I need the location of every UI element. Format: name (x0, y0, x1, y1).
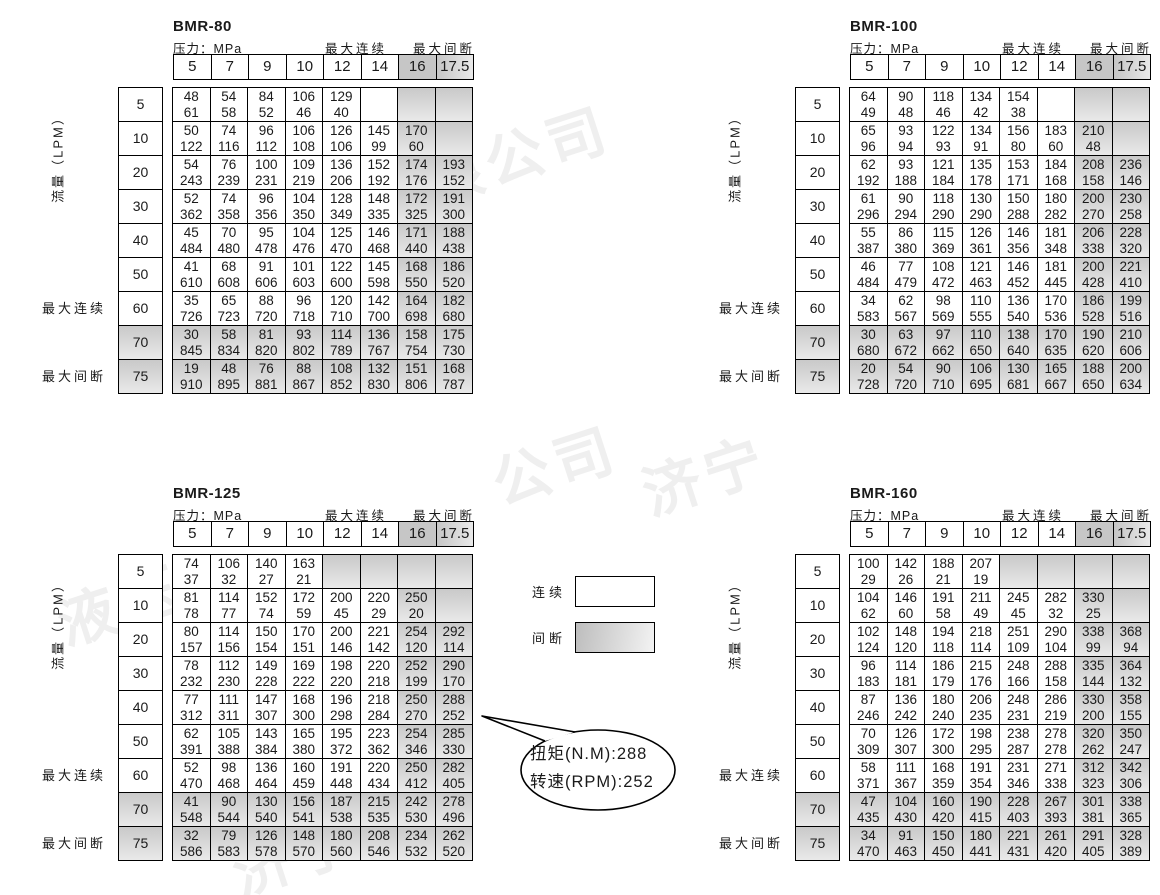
speed-value: 307 (248, 708, 285, 724)
speed-value: 430 (888, 810, 925, 826)
speed-value: 114 (436, 640, 473, 656)
speed-value: 325 (398, 207, 435, 223)
speed-value: 403 (1000, 810, 1037, 826)
table-row: 3096183114181186179215176248166288158335… (712, 656, 1154, 691)
torque-speed-cell: 5458 (210, 87, 249, 122)
torque-speed-cell: 70309 (849, 724, 888, 759)
torque-value: 118 (925, 89, 962, 105)
torque-value: 168 (925, 760, 962, 776)
pressure-header-row: 5791012141617.5 (850, 54, 1154, 80)
pressure-col-header: 14 (1038, 521, 1077, 547)
speed-value: 463 (963, 275, 1000, 291)
torque-value: 58 (211, 327, 248, 343)
speed-value: 60 (1038, 139, 1075, 155)
speed-value: 681 (1000, 377, 1037, 393)
speed-value: 21 (286, 572, 323, 588)
torque-value: 221 (1000, 828, 1037, 844)
table-row: 最大间断753447091463150450180441221431261420… (712, 826, 1154, 861)
torque-speed-cell: 200634 (1112, 359, 1151, 394)
torque-value: 170 (1038, 293, 1075, 309)
torque-value: 34 (850, 293, 887, 309)
torque-speed-cell: 15274 (247, 588, 286, 623)
torque-speed-cell: 118290 (924, 189, 963, 224)
flow-row-header: 5 (118, 554, 163, 589)
speed-value: 680 (850, 343, 887, 359)
speed-value: 362 (361, 742, 398, 758)
torque-value: 175 (436, 327, 473, 343)
torque-value: 261 (1038, 828, 1075, 844)
torque-speed-cell: 130681 (999, 359, 1038, 394)
torque-speed-cell: 106108 (285, 121, 324, 156)
torque-speed-cell: 199516 (1112, 291, 1151, 326)
torque-speed-cell: 98468 (210, 758, 249, 793)
flow-row-header: 30 (795, 656, 840, 691)
torque-speed-cell: 218284 (360, 690, 399, 725)
torque-speed-cell: 236146 (1112, 155, 1151, 190)
max-intermittent-label: 最大间断 (1090, 38, 1152, 57)
pressure-header-row: 5791012141617.5 (173, 521, 477, 547)
torque-speed-cell: 63672 (887, 325, 926, 360)
torque-value: 80 (173, 624, 210, 640)
torque-speed-cell: 150450 (924, 826, 963, 861)
torque-speed-cell: 250270 (397, 690, 436, 725)
speed-value: 104 (1038, 640, 1075, 656)
torque-speed-cell: 350247 (1112, 724, 1151, 759)
speed-value: 166 (1000, 674, 1037, 690)
torque-value: 143 (248, 726, 285, 742)
speed-value: 120 (398, 640, 435, 656)
torque-speed-cell: 130540 (247, 792, 286, 827)
flow-row-header: 30 (795, 189, 840, 224)
torque-value: 278 (1038, 726, 1075, 742)
torque-speed-cell: 252199 (397, 656, 436, 691)
torque-speed-cell: 338365 (1112, 792, 1151, 827)
torque-value: 210 (1075, 123, 1112, 139)
torque-speed-cell: 34583 (849, 291, 888, 326)
torque-value: 98 (211, 760, 248, 776)
speed-value: 49 (963, 606, 1000, 622)
torque-speed-cell: 191354 (962, 758, 1001, 793)
torque-value: 65 (850, 123, 887, 139)
torque-value: 223 (361, 726, 398, 742)
torque-value: 63 (888, 327, 925, 343)
torque-speed-cell: 190620 (1074, 325, 1113, 360)
torque-speed-cell: 218114 (962, 622, 1001, 657)
watermark-text: 公司 (480, 402, 628, 521)
torque-value: 215 (963, 658, 1000, 674)
torque-value: 158 (398, 327, 435, 343)
flow-row-header: 10 (795, 121, 840, 156)
torque-speed-cell: 126106 (322, 121, 361, 156)
table-row: 最大间断753258679583126578148570180560208546… (35, 826, 477, 861)
speed-value: 806 (398, 377, 435, 393)
speed-value: 544 (211, 810, 248, 826)
torque-speed-cell: 200146 (322, 622, 361, 657)
torque-value: 54 (211, 89, 248, 105)
torque-speed-cell: 148570 (285, 826, 324, 861)
speed-value: 634 (1113, 377, 1150, 393)
table-title: BMR-160 (850, 485, 1154, 505)
torque-speed-cell: 168300 (285, 690, 324, 725)
torque-value: 196 (323, 692, 360, 708)
speed-value: 356 (1000, 241, 1037, 257)
speed-value: 359 (925, 776, 962, 792)
speed-value: 78 (173, 606, 210, 622)
speed-value: 232 (173, 674, 210, 690)
speed-value: 620 (1075, 343, 1112, 359)
speed-value: 120 (888, 640, 925, 656)
speed-value: 298 (323, 708, 360, 724)
table-row: 2010212414812019411821811425110929010433… (712, 622, 1154, 657)
torque-speed-cell: 143384 (247, 724, 286, 759)
max-intermittent-label: 最大间断 (1090, 505, 1152, 524)
torque-speed-cell: 102124 (849, 622, 888, 657)
torque-speed-cell: 32586 (172, 826, 211, 861)
speed-value: 516 (1113, 309, 1150, 325)
torque-value: 134 (963, 89, 1000, 105)
torque-value: 100 (850, 556, 887, 572)
max-continuous-label: 最大连续 (325, 505, 387, 524)
torque-speed-cell: 14599 (360, 121, 399, 156)
torque-speed-cell: 19158 (924, 588, 963, 623)
table-row: 3052362743589635610435012834914833517232… (35, 189, 477, 224)
speed-value: 464 (248, 776, 285, 792)
row-side-label: 最大间断 (35, 826, 118, 861)
speed-value: 231 (248, 173, 285, 189)
torque-speed-cell: 170151 (285, 622, 324, 657)
torque-value: 114 (211, 590, 248, 606)
torque-value: 186 (436, 259, 473, 275)
torque-speed-cell: 148335 (360, 189, 399, 224)
torque-value: 262 (436, 828, 473, 844)
torque-value: 215 (361, 794, 398, 810)
speed-value: 767 (361, 343, 398, 359)
speed-value: 61 (173, 105, 210, 121)
speed-value: 448 (323, 776, 360, 792)
speed-value: 895 (211, 377, 248, 393)
speed-value: 152 (436, 173, 473, 189)
speed-value: 60 (888, 606, 925, 622)
speed-value: 171 (1000, 173, 1037, 189)
speed-value: 787 (436, 377, 473, 393)
torque-value: 54 (888, 361, 925, 377)
speed-value: 388 (211, 742, 248, 758)
torque-value: 250 (398, 590, 435, 606)
table-row: 最大连续603458362567985691105551365401705361… (712, 291, 1154, 326)
torque-speed-cell: 170635 (1037, 325, 1076, 360)
speed-value: 445 (1038, 275, 1075, 291)
torque-speed-cell: 19910 (172, 359, 211, 394)
flow-row-header: 10 (795, 588, 840, 623)
torque-value: 330 (1075, 590, 1112, 606)
torque-value: 150 (1000, 191, 1037, 207)
table-row: 57437106321402716321 (35, 554, 477, 589)
torque-value: 245 (1000, 590, 1037, 606)
torque-value: 122 (925, 123, 962, 139)
speed-value: 295 (963, 742, 1000, 758)
torque-speed-cell: 50122 (172, 121, 211, 156)
torque-speed-cell: 223362 (360, 724, 399, 759)
torque-speed-cell: 104430 (887, 792, 926, 827)
speed-value: 62 (850, 606, 887, 622)
speed-value: 356 (248, 207, 285, 223)
speed-value: 479 (888, 275, 925, 291)
speed-value: 262 (1075, 742, 1112, 758)
legend-intermittent-row: 间断 (518, 622, 655, 653)
pressure-header-line: 压力：MPa最大连续最大间断 (850, 505, 1154, 521)
speed-value: 284 (361, 708, 398, 724)
speed-value: 387 (850, 241, 887, 257)
legend-intermittent-label: 间断 (518, 628, 575, 647)
torque-value: 126 (248, 828, 285, 844)
speed-value: 476 (286, 241, 323, 257)
speed-value: 112 (248, 139, 285, 155)
torque-speed-cell: 91606 (247, 257, 286, 292)
torque-speed-cell: 342306 (1112, 758, 1151, 793)
torque-value: 152 (361, 157, 398, 173)
torque-speed-cell: 121463 (962, 257, 1001, 292)
torque-speed-cell: 21048 (1074, 121, 1113, 156)
table-row: 2062192931881211841351781531711841682081… (712, 155, 1154, 190)
torque-value: 136 (323, 157, 360, 173)
speed-value: 450 (925, 844, 962, 860)
torque-value: 231 (1000, 760, 1037, 776)
table-row: 2054243762391002311092191362061521921741… (35, 155, 477, 190)
pressure-col-header: 17.5 (1113, 521, 1152, 547)
torque-value: 76 (248, 361, 285, 377)
table-row: 2080157114156150154170151200146221142254… (35, 622, 477, 657)
torque-speed-cell: 135178 (962, 155, 1001, 190)
torque-speed-cell: 14660 (887, 588, 926, 623)
speed-value: 26 (888, 572, 925, 588)
torque-speed-cell: 132830 (360, 359, 399, 394)
torque-value: 50 (173, 123, 210, 139)
torque-value: 200 (323, 590, 360, 606)
torque-speed-cell: 180240 (924, 690, 963, 725)
speed-value: 361 (963, 241, 1000, 257)
torque-speed-cell: 168550 (397, 257, 436, 292)
torque-speed-cell: 150154 (247, 622, 286, 657)
torque-value: 168 (436, 361, 473, 377)
torque-value: 206 (963, 692, 1000, 708)
torque-speed-cell: 104476 (285, 223, 324, 258)
torque-speed-cell: 96718 (285, 291, 324, 326)
pressure-col-header: 16 (398, 54, 437, 80)
torque-value: 186 (925, 658, 962, 674)
speed-value: 569 (925, 309, 962, 325)
speed-value: 99 (1075, 640, 1112, 656)
speed-value: 246 (850, 708, 887, 724)
torque-value: 248 (1000, 692, 1037, 708)
table-row: 7030680636729766211065013864017063519062… (712, 325, 1154, 360)
speed-value: 881 (248, 377, 285, 393)
torque-speed-cell: 165380 (285, 724, 324, 759)
torque-value: 290 (1038, 624, 1075, 640)
data-grid: 流量（LPM）510029142261882120719101046214660… (712, 554, 1154, 861)
torque-value: 198 (323, 658, 360, 674)
speed-value: 695 (963, 377, 1000, 393)
speed-value: 560 (323, 844, 360, 860)
torque-speed-cell: 8178 (172, 588, 211, 623)
torque-speed-cell: 36894 (1112, 622, 1151, 657)
torque-speed-cell: 187538 (322, 792, 361, 827)
torque-value: 368 (1113, 624, 1150, 640)
torque-value: 195 (323, 726, 360, 742)
pressure-col-header: 7 (211, 54, 250, 80)
torque-value: 30 (850, 327, 887, 343)
torque-speed-cell: 106695 (962, 359, 1001, 394)
table-row: 105012274116961121061081261061459917060 (35, 121, 477, 156)
torque-value: 198 (963, 726, 1000, 742)
speed-value: 218 (361, 674, 398, 690)
table-row: 1010462146601915821149245452823233025 (712, 588, 1154, 623)
speed-value: 157 (173, 640, 210, 656)
torque-speed-cell: 172300 (924, 724, 963, 759)
torque-speed-cell: 97662 (924, 325, 963, 360)
flow-row-header: 70 (795, 792, 840, 827)
torque-value: 208 (1075, 157, 1112, 173)
speed-value: 710 (323, 309, 360, 325)
torque-value: 164 (398, 293, 435, 309)
speed-value: 228 (248, 674, 285, 690)
torque-value: 152 (248, 590, 285, 606)
speed-value: 21 (925, 572, 962, 588)
torque-speed-cell: 136242 (887, 690, 926, 725)
pressure-col-header: 16 (1075, 54, 1114, 80)
speed-value: 106 (323, 139, 360, 155)
speed-value: 52 (248, 105, 285, 121)
speed-value: 468 (211, 776, 248, 792)
speed-value: 431 (1000, 844, 1037, 860)
torque-speed-cell: 320262 (1074, 724, 1113, 759)
torque-value: 187 (323, 794, 360, 810)
torque-value: 165 (1038, 361, 1075, 377)
torque-value: 200 (323, 624, 360, 640)
torque-speed-cell: 10632 (210, 554, 249, 589)
torque-value: 64 (850, 89, 887, 105)
torque-value: 242 (398, 794, 435, 810)
torque-speed-cell: 105388 (210, 724, 249, 759)
torque-speed-cell: 9394 (887, 121, 926, 156)
torque-speed-cell: 54243 (172, 155, 211, 190)
pressure-col-header: 14 (361, 54, 400, 80)
torque-value: 171 (398, 225, 435, 241)
speed-value: 389 (1113, 844, 1150, 860)
torque-value: 251 (1000, 624, 1037, 640)
torque-speed-cell: 221142 (360, 622, 399, 657)
torque-value: 95 (248, 225, 285, 241)
speed-value: 710 (925, 377, 962, 393)
torque-speed-cell: 55387 (849, 223, 888, 258)
torque-value: 77 (888, 259, 925, 275)
torque-speed-cell: 11846 (924, 87, 963, 122)
pressure-col-header: 17.5 (436, 521, 475, 547)
torque-value: 148 (286, 828, 323, 844)
torque-value: 111 (211, 692, 248, 708)
torque-speed-cell: 7437 (172, 554, 211, 589)
torque-value: 74 (211, 123, 248, 139)
speed-value: 546 (361, 844, 398, 860)
torque-value: 338 (1075, 624, 1112, 640)
torque-speed-cell: 87246 (849, 690, 888, 725)
torque-value: 180 (925, 692, 962, 708)
torque-speed-cell: 228403 (999, 792, 1038, 827)
torque-value: 312 (1075, 760, 1112, 776)
torque-speed-cell: 88867 (285, 359, 324, 394)
max-continuous-label: 最大连续 (1002, 38, 1064, 57)
torque-speed-cell: 96356 (247, 189, 286, 224)
speed-value: 541 (286, 810, 323, 826)
row-side-label: 最大连续 (35, 291, 118, 326)
speed-value: 93 (925, 139, 962, 155)
torque-speed-cell: 30680 (849, 325, 888, 360)
speed-value: 410 (1113, 275, 1150, 291)
flow-row-header: 10 (118, 121, 163, 156)
torque-speed-cell: 13491 (962, 121, 1001, 156)
torque-speed-cell: 262520 (435, 826, 474, 861)
torque-speed-cell: 231346 (999, 758, 1038, 793)
torque-speed-cell: 254346 (397, 724, 436, 759)
torque-speed-cell: 114789 (322, 325, 361, 360)
torque-value: 61 (850, 191, 887, 207)
torque-speed-cell: 54720 (887, 359, 926, 394)
pressure-col-header: 10 (963, 54, 1002, 80)
torque-speed-cell: 186520 (435, 257, 474, 292)
table-row: 5070309126307172300198295238287278278320… (712, 724, 1154, 759)
torque-value: 126 (963, 225, 1000, 241)
torque-speed-cell: 138640 (999, 325, 1038, 360)
flow-row-header: 60 (118, 291, 163, 326)
speed-value: 38 (1000, 105, 1037, 121)
torque-value: 142 (888, 556, 925, 572)
flow-row-header: 30 (118, 656, 163, 691)
pressure-header-line: 压力：MPa最大连续最大间断 (850, 38, 1154, 54)
torque-value: 248 (1000, 658, 1037, 674)
torque-speed-cell (360, 87, 399, 122)
speed-value: 178 (963, 173, 1000, 189)
torque-value: 52 (173, 760, 210, 776)
row-side-label: 最大间断 (712, 359, 795, 394)
speed-value: 550 (398, 275, 435, 291)
speed-value: 730 (436, 343, 473, 359)
torque-value: 41 (173, 794, 210, 810)
speed-value: 718 (286, 309, 323, 325)
speed-value: 270 (1075, 207, 1112, 223)
speed-value: 830 (361, 377, 398, 393)
speed-value: 535 (361, 810, 398, 826)
torque-speed-cell (397, 554, 436, 589)
speed-value: 307 (888, 742, 925, 758)
torque-value: 97 (925, 327, 962, 343)
torque-value: 150 (248, 624, 285, 640)
torque-speed-cell: 364132 (1112, 656, 1151, 691)
torque-value: 104 (286, 225, 323, 241)
torque-value: 149 (248, 658, 285, 674)
speed-value: 754 (398, 343, 435, 359)
torque-value: 30 (173, 327, 210, 343)
torque-value: 218 (361, 692, 398, 708)
torque-speed-cell: 180441 (962, 826, 1001, 861)
torque-value: 114 (888, 658, 925, 674)
flow-axis-label: 流量（LPM） (725, 87, 744, 227)
speed-value: 19 (963, 572, 1000, 588)
pressure-col-header: 12 (323, 521, 362, 547)
torque-speed-cell: 206235 (962, 690, 1001, 725)
flow-row-header: 20 (118, 622, 163, 657)
torque-speed-cell: 184168 (1037, 155, 1076, 190)
torque-speed-cell: 181445 (1037, 257, 1076, 292)
speed-value: 520 (436, 275, 473, 291)
